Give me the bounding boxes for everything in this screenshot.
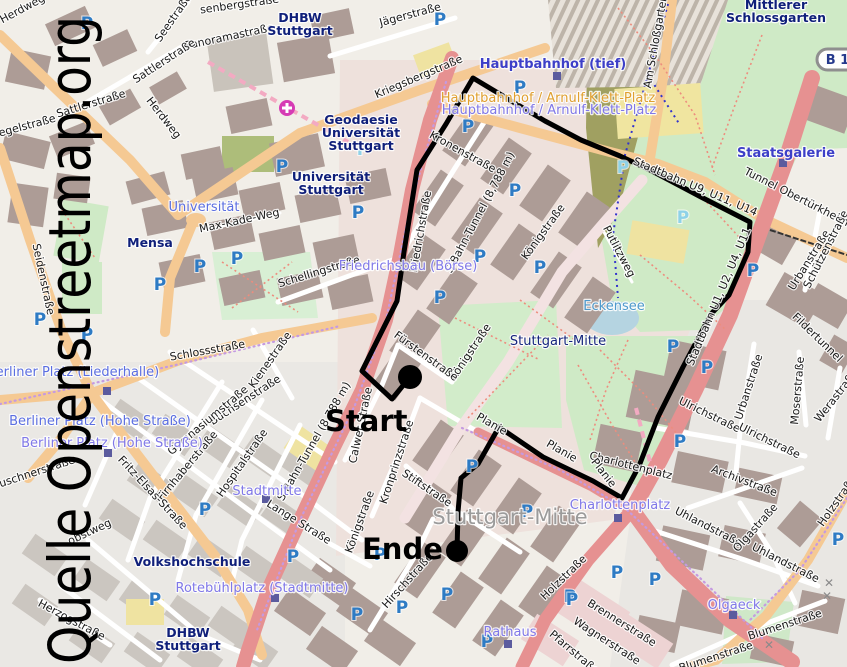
road-badge-text: B 14 xyxy=(826,53,847,68)
station-label-hauptbahnhof-tief: Hauptbahnhof (tief) xyxy=(480,57,626,72)
parking-icon-8: P xyxy=(462,117,474,137)
station-label-eckensee: Eckensee xyxy=(583,299,644,314)
route-start-label: Start xyxy=(325,404,408,438)
parking-icon-3: P xyxy=(276,157,288,177)
road-badge-b14: B 14 xyxy=(817,49,847,70)
parking-icon-27: P xyxy=(649,570,661,590)
station-label-friedrichsbau-boerse: Friedrichsbau (Börse) xyxy=(339,259,478,274)
parking-icon-6: P xyxy=(231,249,243,269)
parking-icon-9: P xyxy=(509,181,521,201)
hospital-icon xyxy=(279,100,295,116)
poi-label-mensa: Mensa xyxy=(127,235,173,250)
station-label-stadtmitte: Stadtmitte xyxy=(232,484,301,499)
parking-icon-16: P xyxy=(674,432,686,452)
station-label-universitaet-station: Universität xyxy=(169,200,240,215)
district-label-stuttgart-mitte-large: Stuttgart-Mitte xyxy=(432,505,587,529)
parking-icon-21: P xyxy=(351,605,363,625)
parking-icon-13: P xyxy=(434,288,446,308)
attribution-watermark: Quelle Openstreetmap.org xyxy=(36,16,104,664)
crossing-icon-0: ✕ xyxy=(824,576,834,590)
station-label-hbf-arnulf-klett-platz-purple: Hauptbahnhof / Arnulf-Klett-Platz xyxy=(442,103,657,118)
poi-label-volkshochschule: Volkshochschule xyxy=(134,554,251,569)
parking-icon-28: P xyxy=(566,590,578,610)
map-viewport[interactable]: PPPPPPPPPPPPPPPPPPPPPPPPPPPPPPPPPPPPP✕✕✕… xyxy=(0,0,847,667)
station-label-staatsgalerie: Staatsgalerie xyxy=(737,146,835,161)
station-label-rotebuehlplatz-stadtmitte: Rotebühlplatz (Stadtmitte) xyxy=(176,581,349,596)
route-start-marker xyxy=(398,365,422,389)
parking-icon-19: P xyxy=(441,585,453,605)
station-label-rathaus: Rathaus xyxy=(483,625,536,640)
station-marker-icon-2 xyxy=(103,387,111,395)
parking-icon-14: P xyxy=(667,337,679,357)
crossing-icon-1: ✕ xyxy=(822,589,832,603)
parking-icon-cyan-1: P xyxy=(617,158,629,178)
parking-icon-22: P xyxy=(287,547,299,567)
parking-icon-cyan-2: P xyxy=(677,208,689,228)
parking-icon-29: P xyxy=(199,500,211,520)
parking-icon-26: P xyxy=(611,563,623,583)
station-label-olgaeck: Olgaeck xyxy=(708,598,761,613)
parking-icon-30: P xyxy=(149,590,161,610)
parking-icon-33: P xyxy=(832,530,844,550)
parking-icon-17: P xyxy=(466,457,478,477)
station-marker-icon-6 xyxy=(504,640,512,648)
route-end-marker xyxy=(446,540,468,562)
parking-icon-12: P xyxy=(747,261,759,281)
parking-icon-5: P xyxy=(194,257,206,277)
parking-icon-4: P xyxy=(352,203,364,223)
parking-icon-7: P xyxy=(154,275,166,295)
parking-icon-11: P xyxy=(534,258,546,278)
district-label-stuttgart-mitte-small: Stuttgart-Mitte xyxy=(510,334,606,349)
station-marker-icon-0 xyxy=(553,72,561,80)
poi-label-geodaesie-universitaet-stuttgart: GeodaesieUniversitätStuttgart xyxy=(322,112,400,153)
crossing-icon-2: ✕ xyxy=(764,638,774,652)
poi-label-universitaet-stuttgart: UniversitätStuttgart xyxy=(292,169,370,197)
station-marker-icon-7 xyxy=(614,514,622,522)
map-canvas[interactable]: PPPPPPPPPPPPPPPPPPPPPPPPPPPPPPPPPPPPP✕✕✕… xyxy=(0,0,847,667)
route-end-label: Ende xyxy=(362,532,443,566)
parking-icon-15: P xyxy=(701,358,713,378)
